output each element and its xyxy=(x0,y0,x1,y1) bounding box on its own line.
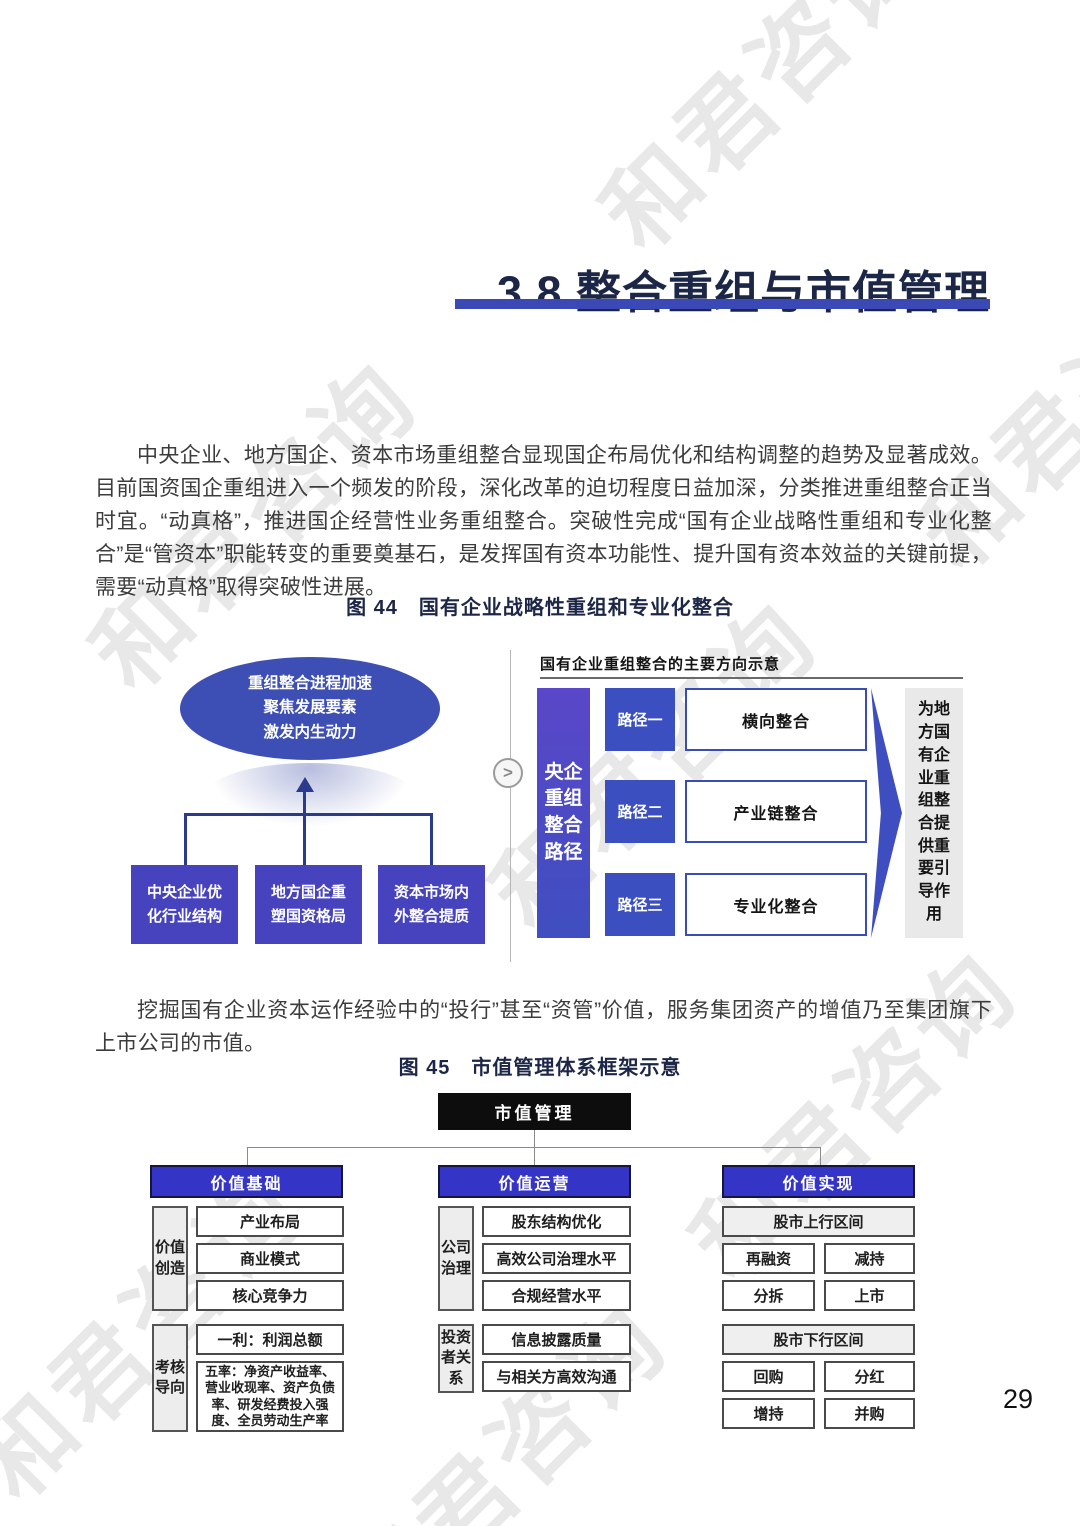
source-box-label: 中央企业优化行业结构 xyxy=(146,881,223,928)
item-box: 一利：利润总额 xyxy=(196,1324,344,1355)
up-arrow-line xyxy=(303,790,306,815)
source-box-label: 地方国企重塑国资格局 xyxy=(270,881,347,928)
connector-line xyxy=(303,814,306,866)
item-box: 信息披露质量 xyxy=(482,1324,631,1355)
item-box: 再融资 xyxy=(722,1243,815,1274)
ellipse-line: 重组整合进程加速 xyxy=(248,672,372,696)
figure44-caption: 图 44 国有企业战略性重组和专业化整合 xyxy=(0,591,1080,620)
ellipse-line: 聚焦发展要素 xyxy=(263,696,356,720)
item-box: 高效公司治理水平 xyxy=(482,1243,631,1274)
right-panel-title: 国有企业重组整合的主要方向示意 xyxy=(540,653,780,674)
page-number: 29 xyxy=(1003,1384,1033,1415)
outcome-label: 为地方国有企业重组整合提供重要引导作用 xyxy=(918,699,951,926)
side-label-assessment-orientation: 考核导向 xyxy=(152,1324,188,1432)
connector-line xyxy=(184,814,187,866)
root-box-market-value: 市值管理 xyxy=(438,1093,631,1130)
path-value-1: 横向整合 xyxy=(685,688,867,751)
figure44-divider xyxy=(510,650,511,962)
item-box: 产业布局 xyxy=(196,1206,344,1237)
figure45-caption: 图 45 市值管理体系框架示意 xyxy=(0,1051,1080,1080)
path-box-2: 路径二 xyxy=(605,780,675,843)
connector-line xyxy=(247,1147,248,1167)
side-label-corporate-governance: 公司治理 xyxy=(438,1206,474,1311)
figure44-ellipse: 重组整合进程加速 聚焦发展要素 激发内生动力 xyxy=(180,657,440,760)
connector-line xyxy=(534,1130,535,1147)
report-page: 和君咨询 和君咨询 和君咨询 和君咨询 和君咨询 和君咨询 和君咨询 3.8 整… xyxy=(0,0,1080,1526)
source-box-label: 资本市场内外整合提质 xyxy=(393,881,470,928)
ellipse-line: 激发内生动力 xyxy=(263,721,356,745)
side-label-text: 投资者关系 xyxy=(441,1328,472,1389)
item-box: 合规经营水平 xyxy=(482,1280,631,1311)
paths-bar-label: 央企重组整合路径 xyxy=(544,760,584,866)
side-label-text: 考核导向 xyxy=(155,1358,186,1399)
connector-bracket xyxy=(184,813,433,816)
item-box: 上市 xyxy=(824,1280,915,1311)
item-box: 分拆 xyxy=(722,1280,815,1311)
side-label-value-creation: 价值创造 xyxy=(152,1206,188,1311)
item-box: 核心竞争力 xyxy=(196,1280,344,1311)
side-label-text: 价值创造 xyxy=(155,1238,186,1279)
connector-line xyxy=(534,1147,535,1167)
item-box: 商业模式 xyxy=(196,1243,344,1274)
item-box: 回购 xyxy=(722,1361,815,1392)
connector-line xyxy=(430,814,433,866)
path-value-2: 产业链整合 xyxy=(685,780,867,843)
item-box: 并购 xyxy=(824,1398,915,1429)
item-box: 减持 xyxy=(824,1243,915,1274)
item-box: 五率：净资产收益率、营业收现率、资产负债率、研发经费投入强度、全员劳动生产率 xyxy=(196,1361,344,1432)
side-label-investor-relations: 投资者关系 xyxy=(438,1324,474,1393)
path-box-3: 路径三 xyxy=(605,873,675,936)
paths-vertical-bar: 央企重组整合路径 xyxy=(537,688,590,938)
item-box: 增持 xyxy=(722,1398,815,1429)
item-box: 分红 xyxy=(824,1361,915,1392)
column-header-value-operation: 价值运营 xyxy=(438,1165,631,1198)
source-box-local-soe: 地方国企重塑国资格局 xyxy=(255,865,362,944)
source-box-central-soe: 中央企业优化行业结构 xyxy=(131,865,238,944)
side-label-text: 公司治理 xyxy=(441,1238,472,1279)
outcome-box: 为地方国有企业重组整合提供重要引导作用 xyxy=(905,688,963,938)
path-box-1: 路径一 xyxy=(605,688,675,751)
item-box: 股东结构优化 xyxy=(482,1206,631,1237)
column-header-value-base: 价值基础 xyxy=(150,1165,343,1198)
title-underline xyxy=(455,299,990,309)
item-box: 与相关方高效沟通 xyxy=(482,1361,631,1392)
band-title-market-up: 股市上行区间 xyxy=(722,1206,915,1237)
band-title-market-down: 股市下行区间 xyxy=(722,1324,915,1355)
section-title: 3.8 整合重组与市值管理 xyxy=(497,256,990,321)
right-panel-rule xyxy=(540,677,963,679)
path-value-3: 专业化整合 xyxy=(685,873,867,936)
watermark-text: 和君咨询 xyxy=(566,0,954,274)
chevron-right-icon: > xyxy=(493,758,523,788)
column-header-value-realization: 价值实现 xyxy=(722,1165,915,1198)
connector-line xyxy=(820,1147,821,1167)
ellipse-reflection xyxy=(205,763,415,829)
source-box-capital-market: 资本市场内外整合提质 xyxy=(378,865,485,944)
big-right-arrow-icon xyxy=(871,688,902,938)
intro-paragraph: 中央企业、地方国企、资本市场重组整合显现国企布局优化和结构调整的趋势及显著成效。… xyxy=(95,439,992,604)
